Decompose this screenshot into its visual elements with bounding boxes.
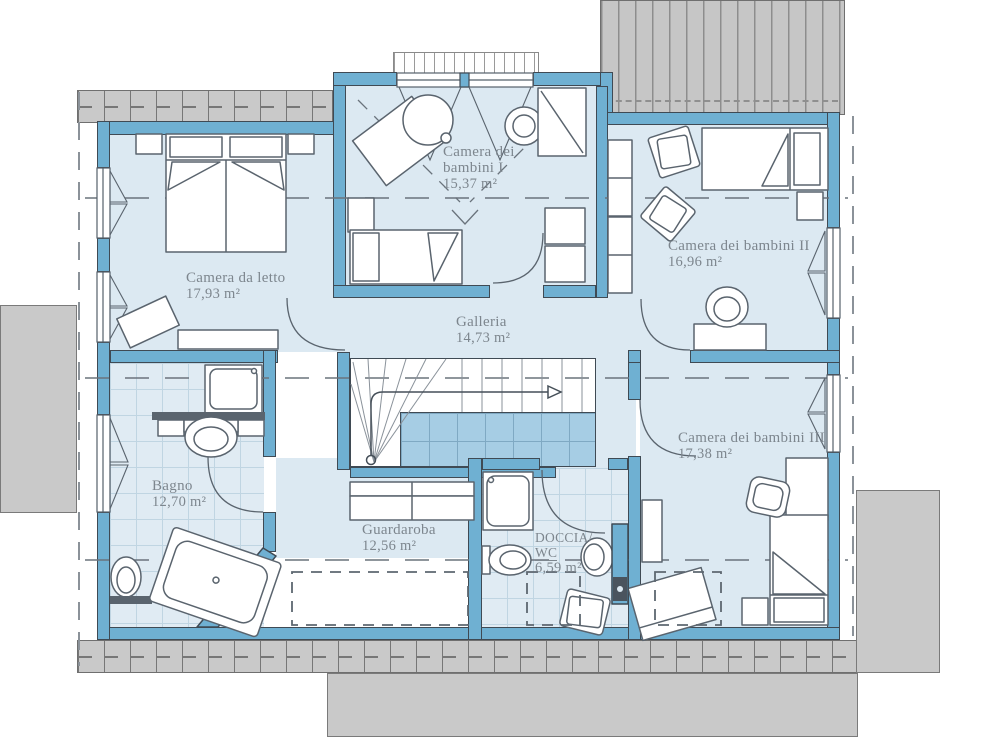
furniture-camera-bambini-3 <box>628 458 828 640</box>
fixtures-guardaroba <box>350 482 474 520</box>
door-bagno <box>208 457 263 512</box>
room-label-camera-bambini-2: Camera dei bambini II 16,96 m² <box>668 238 810 270</box>
nightstand <box>288 134 314 154</box>
sideboard <box>642 500 662 562</box>
futon <box>628 568 716 641</box>
room-name: Galleria <box>456 314 510 330</box>
pillow <box>353 233 379 281</box>
door-doccia-wc <box>542 470 605 533</box>
room-name: Camera dei bambini II <box>668 238 810 254</box>
room-area: 17,38 m² <box>678 446 825 462</box>
slope-vertex-mark <box>452 210 478 224</box>
shower-drain <box>489 478 494 483</box>
vanity-cabinet <box>158 420 184 436</box>
room-area: 12,70 m² <box>152 494 206 510</box>
nightstand <box>742 598 768 625</box>
stair-direction-arrow <box>367 386 562 465</box>
wardrobe <box>786 458 828 520</box>
pillow <box>794 133 820 185</box>
room-label-camera-bambini-1: Camera dei bambini I 15,37 m² <box>443 144 515 192</box>
room-name: WC <box>535 545 557 561</box>
vanity-cabinet <box>238 420 264 436</box>
cabinet <box>545 208 585 244</box>
vanity-cabinet <box>694 324 766 350</box>
floor-plan: Camera da letto 17,93 m² Camera dei bamb… <box>0 0 1000 737</box>
room-label-doccia-wc: DOCCIA/ WC 6,59 m² <box>535 530 593 576</box>
room-label-bagno: Bagno 12,70 m² <box>152 478 206 510</box>
nightstand <box>136 134 162 154</box>
room-name: Bagno <box>152 478 206 494</box>
room-area: 12,56 m² <box>362 538 436 554</box>
low-wall <box>110 596 152 604</box>
room-area: 15,37 m² <box>443 176 515 192</box>
plan-graphics <box>0 0 1000 737</box>
room-name: DOCCIA/ <box>535 530 593 545</box>
room-name: bambini I <box>443 160 515 176</box>
door-camera-bambini-1 <box>493 233 543 283</box>
door-camera-da-letto <box>287 298 345 350</box>
pillow <box>230 137 282 157</box>
dresser <box>178 330 278 349</box>
room-label-camera-da-letto: Camera da letto 17,93 m² <box>186 270 285 302</box>
shower-drain <box>252 369 257 374</box>
cabinet <box>545 246 585 282</box>
room-label-guardaroba: Guardaroba 12,56 m² <box>362 522 436 554</box>
room-name: Camera dei bambini III <box>678 430 825 446</box>
room-area: 6,59 m² <box>535 561 593 576</box>
nightstand <box>797 192 823 220</box>
room-label-camera-bambini-3: Camera dei bambini III 17,38 m² <box>678 430 825 462</box>
room-name: Guardaroba <box>362 522 436 538</box>
room-label-galleria: Galleria 14,73 m² <box>456 314 510 346</box>
furniture-camera-da-letto <box>117 134 314 349</box>
room-area: 16,96 m² <box>668 254 810 270</box>
staircase <box>351 359 582 465</box>
pillow <box>774 598 824 622</box>
room-name: Camera da letto <box>186 270 285 286</box>
room-area: 17,93 m² <box>186 286 285 302</box>
door-camera-bambini-2 <box>641 299 690 350</box>
pillow <box>170 137 222 157</box>
wardrobe <box>348 198 374 232</box>
room-name: Camera dei <box>443 144 515 160</box>
room-area: 14,73 m² <box>456 330 510 346</box>
lamp <box>441 133 451 143</box>
